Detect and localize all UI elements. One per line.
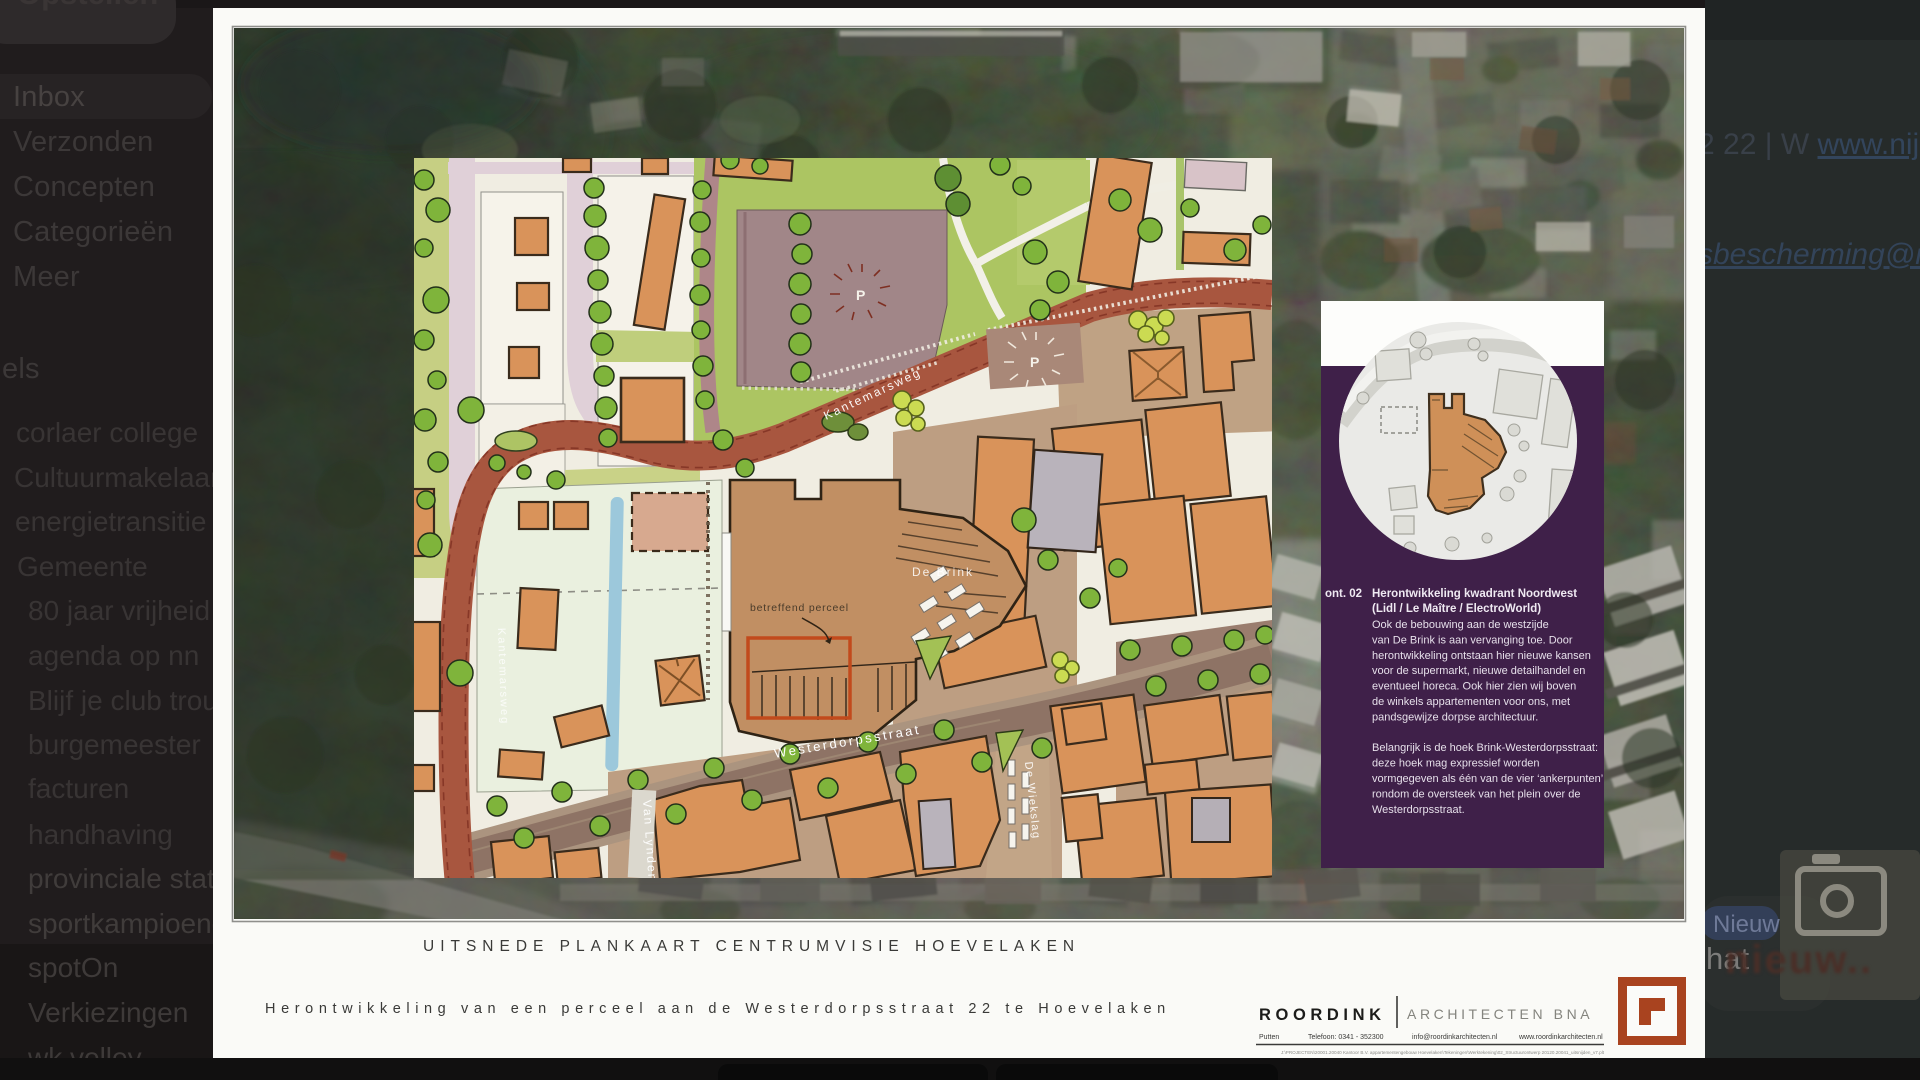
svg-text:ont. 02: ont. 02 (1325, 588, 1362, 600)
svg-text:ARCHITECTEN BNA: ARCHITECTEN BNA (1407, 1006, 1593, 1022)
svg-text:vormgegeven als één van de vie: vormgegeven als één van de vier ‘ankerpu… (1372, 773, 1603, 785)
svg-text:betreffend perceel: betreffend perceel (750, 602, 849, 614)
svg-text:Ook de bebouwing aan de westzi: Ook de bebouwing aan de westzijde (1372, 619, 1549, 631)
svg-text:Westerdorpsstraat.: Westerdorpsstraat. (1372, 804, 1465, 816)
svg-text:De Brink: De Brink (912, 565, 974, 579)
svg-text:UITSNEDE PLANKAART CENTRUMVISI: UITSNEDE PLANKAART CENTRUMVISIE HOEVELAK… (423, 938, 1080, 955)
svg-text:Putten: Putten (1259, 1034, 1279, 1041)
svg-text:www.roordinkarchitecten.nl: www.roordinkarchitecten.nl (1518, 1034, 1603, 1041)
svg-text:(Lidl / Le Maître / ElectroWor: (Lidl / Le Maître / ElectroWorld) (1372, 603, 1541, 615)
svg-text:info@roordinkarchitecten.nl: info@roordinkarchitecten.nl (1412, 1034, 1498, 1041)
svg-text:Belangrijk is de hoek Brink-We: Belangrijk is de hoek Brink-Westerdorpss… (1372, 742, 1598, 754)
svg-text:ROORDINK: ROORDINK (1259, 1006, 1386, 1024)
svg-text:Herontwikkeling kwadrant Noord: Herontwikkeling kwadrant Noordwest (1372, 588, 1577, 600)
svg-text:pandsgewijze dorpse architectu: pandsgewijze dorpse architectuur. (1372, 711, 1538, 723)
svg-text:P: P (1030, 354, 1039, 370)
svg-text:Telefoon: 0341 - 352300: Telefoon: 0341 - 352300 (1308, 1034, 1384, 1041)
svg-text:J:\PROJECTEN\20001.20040 Kanto: J:\PROJECTEN\20001.20040 Kantoor B.V. ap… (1281, 1050, 1605, 1055)
svg-text:rondom de oversteek van het pl: rondom de oversteek van het plein over d… (1372, 788, 1581, 800)
svg-text:Herontwikkeling van een percee: Herontwikkeling van een perceel aan de W… (265, 1001, 1171, 1017)
svg-text:deze hoek mag expressief worde: deze hoek mag expressief worden (1372, 758, 1540, 770)
svg-text:P: P (856, 287, 865, 303)
svg-text:voor de supermarkt, nieuwe det: voor de supermarkt, nieuwe detailhandel … (1372, 665, 1585, 677)
svg-text:van De Brink is aan vervanging: van De Brink is aan vervanging toe. Door (1372, 634, 1573, 646)
svg-text:de winkels appartementen voor: de winkels appartementen voor ons, met (1372, 696, 1570, 708)
svg-text:herontwikkeling ontstaan hier: herontwikkeling ontstaan hier nieuwe kan… (1372, 650, 1591, 662)
svg-text:eventueel horeca. Ook hier zie: eventueel horeca. Ook hier zien wij bove… (1372, 681, 1576, 693)
